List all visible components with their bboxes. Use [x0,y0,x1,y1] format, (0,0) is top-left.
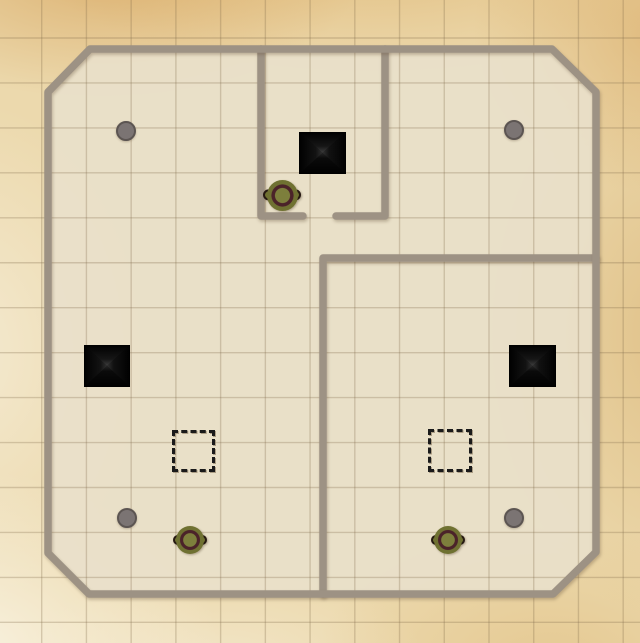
token-body [176,526,204,554]
pyramid-block-north[interactable] [299,132,346,174]
marker-dot-northwest [116,121,136,141]
creature-token-southwest[interactable] [176,526,204,554]
battle-map-canvas[interactable] [0,0,640,643]
creature-token-southeast[interactable] [434,526,462,554]
pyramid-block-east[interactable] [509,345,556,387]
token-body [434,526,462,554]
map-objects-layer [0,0,640,643]
marker-dot-southwest [117,508,137,528]
placement-zone-west [172,430,215,472]
placement-zone-east [428,429,472,472]
pyramid-block-west[interactable] [84,345,130,387]
creature-token-north[interactable] [267,180,298,211]
marker-dot-northeast [504,120,524,140]
token-body [267,180,298,211]
marker-dot-southeast [504,508,524,528]
